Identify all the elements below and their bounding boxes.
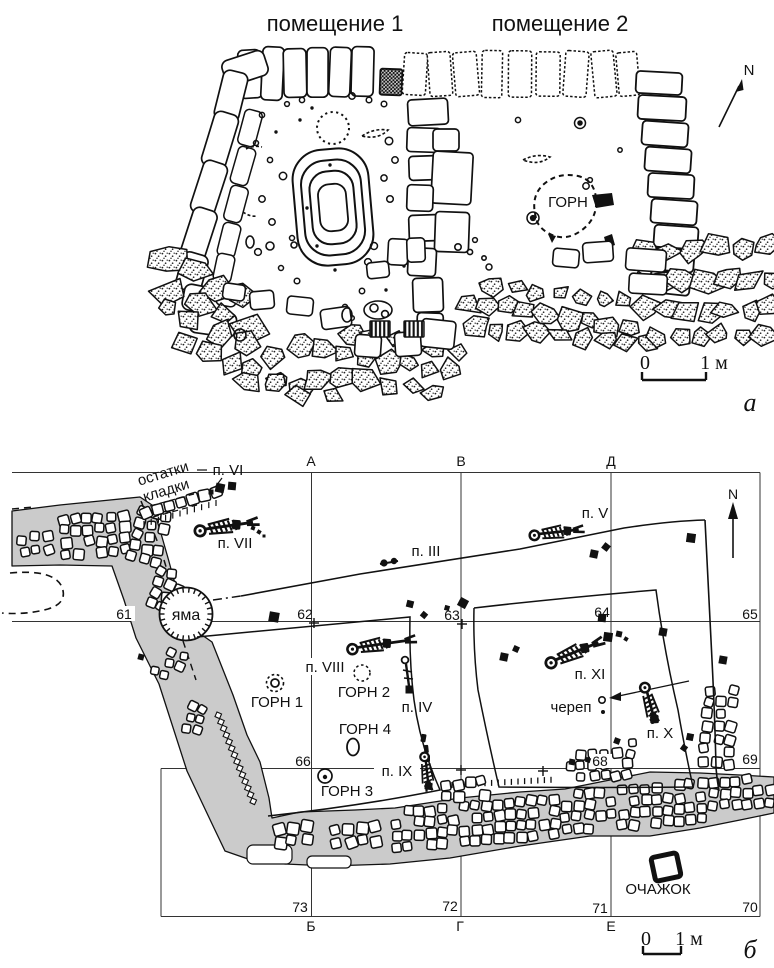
- svg-text:помещение 2: помещение 2: [492, 11, 629, 36]
- svg-text:69: 69: [742, 751, 758, 767]
- svg-text:В: В: [456, 453, 465, 469]
- svg-text:ОЧАЖОК: ОЧАЖОК: [625, 881, 691, 898]
- svg-text:71: 71: [592, 900, 608, 916]
- svg-text:Е: Е: [606, 918, 615, 934]
- svg-text:66: 66: [295, 753, 311, 769]
- svg-text:N: N: [744, 62, 755, 79]
- svg-text:62: 62: [297, 606, 313, 622]
- svg-text:п. XI: п. XI: [575, 666, 606, 683]
- svg-text:Г: Г: [456, 918, 464, 934]
- svg-text:п. VIII: п. VIII: [306, 659, 345, 676]
- svg-text:N: N: [728, 486, 738, 502]
- svg-text:ГОРН: ГОРН: [548, 194, 588, 211]
- svg-text:ГОРН 2: ГОРН 2: [338, 684, 390, 701]
- svg-text:73: 73: [292, 899, 308, 915]
- svg-text:п. X: п. X: [647, 725, 673, 742]
- svg-text:п. VI: п. VI: [213, 462, 244, 479]
- svg-text:68: 68: [592, 753, 608, 769]
- svg-text:1 м: 1 м: [675, 928, 703, 950]
- svg-text:п. V: п. V: [582, 505, 608, 522]
- svg-text:61: 61: [116, 606, 132, 622]
- svg-text:п. IV: п. IV: [402, 699, 433, 716]
- svg-text:А: А: [306, 453, 316, 469]
- svg-text:70: 70: [742, 899, 758, 915]
- svg-text:65: 65: [742, 606, 758, 622]
- svg-text:а: а: [744, 388, 757, 417]
- svg-text:Д: Д: [606, 453, 616, 469]
- svg-text:0: 0: [641, 928, 651, 950]
- svg-text:яма: яма: [172, 607, 201, 624]
- svg-text:п. III: п. III: [412, 543, 441, 560]
- svg-text:б: б: [743, 935, 757, 964]
- svg-text:п. VII: п. VII: [218, 535, 253, 552]
- svg-text:0: 0: [640, 352, 650, 374]
- svg-text:1 м: 1 м: [700, 352, 728, 374]
- svg-text:72: 72: [442, 898, 458, 914]
- svg-text:ГОРН 1: ГОРН 1: [251, 694, 303, 711]
- svg-text:череп: череп: [551, 699, 592, 716]
- svg-text:ГОРН 4: ГОРН 4: [339, 721, 391, 738]
- svg-text:ГОРН 3: ГОРН 3: [321, 783, 373, 800]
- svg-text:п. IX: п. IX: [382, 763, 413, 780]
- svg-text:Б: Б: [306, 918, 315, 934]
- svg-text:помещение 1: помещение 1: [267, 11, 404, 36]
